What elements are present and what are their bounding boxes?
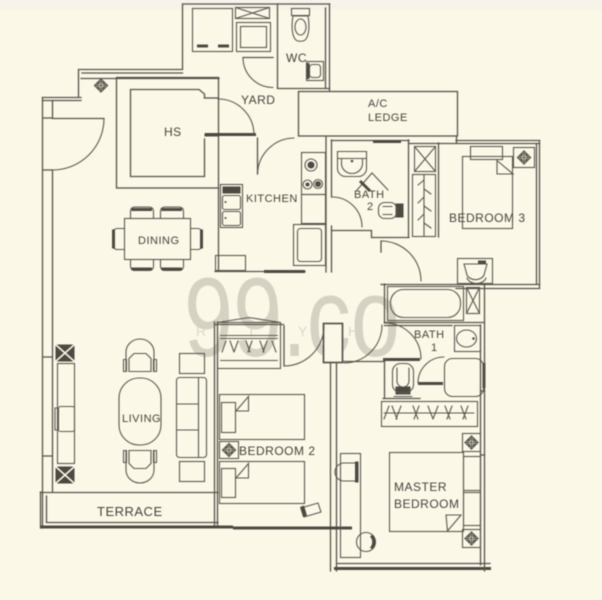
svg-text:KITCHEN: KITCHEN: [246, 193, 298, 205]
svg-text:TERRACE: TERRACE: [97, 504, 163, 519]
svg-text:BATH: BATH: [354, 189, 385, 201]
svg-text:BEDROOM 2: BEDROOM 2: [239, 444, 316, 458]
svg-text:LIVING: LIVING: [122, 413, 161, 425]
svg-text:1: 1: [431, 342, 438, 354]
svg-text:BEDROOM 3: BEDROOM 3: [449, 211, 526, 225]
svg-text:T: T: [247, 323, 256, 339]
svg-text:WC: WC: [286, 51, 307, 65]
svg-text:Y: Y: [298, 323, 308, 339]
svg-text:R: R: [196, 323, 206, 339]
svg-text:BEDROOM: BEDROOM: [394, 497, 460, 511]
svg-text:BATH: BATH: [414, 329, 445, 341]
svg-text:MASTER: MASTER: [394, 480, 447, 494]
svg-text:H: H: [348, 323, 358, 339]
svg-text:A/C: A/C: [368, 98, 388, 110]
svg-text:DINING: DINING: [138, 235, 180, 247]
svg-text:2: 2: [367, 201, 374, 213]
svg-text:HS: HS: [164, 125, 182, 139]
svg-text:YARD: YARD: [241, 93, 275, 107]
svg-text:LEDGE: LEDGE: [368, 112, 408, 124]
